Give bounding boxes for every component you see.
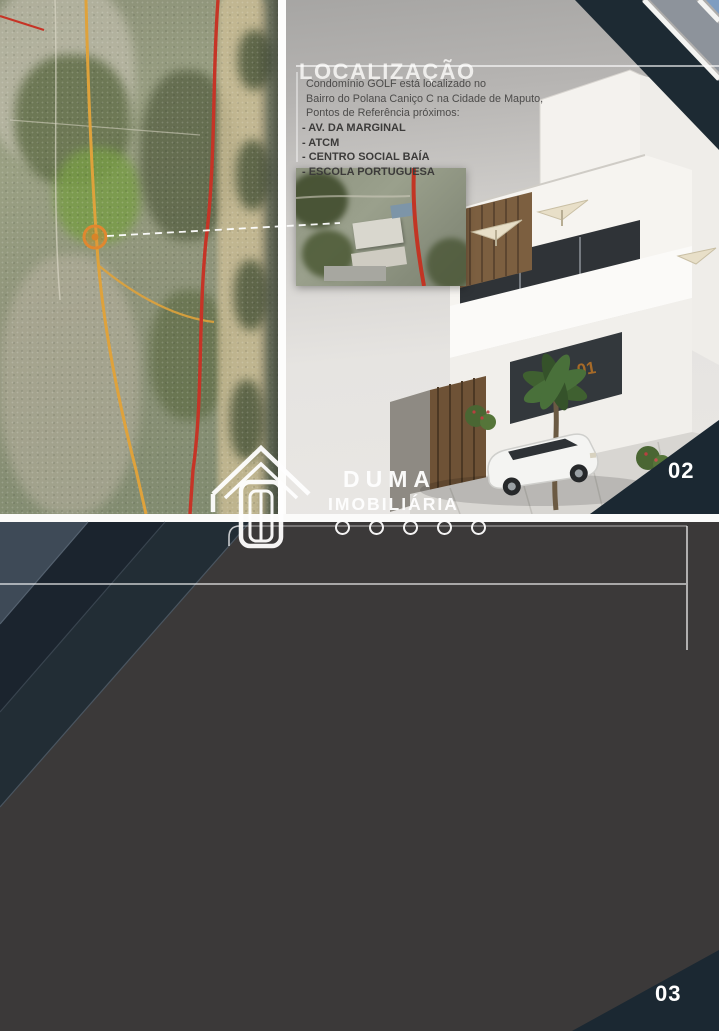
logo-circle: [335, 520, 350, 535]
localization-description: Condomínio GOLF está localizado no Bairr…: [306, 77, 543, 121]
road-light: [10, 120, 200, 135]
brochure-page: 01: [0, 0, 719, 1031]
brand-name-line2: IMOBILIÁRIA: [328, 494, 459, 515]
landmark-item: - CENTRO SOCIAL BAÍA: [302, 150, 435, 165]
brand-name-line1: DUMA: [343, 466, 436, 493]
road-red-spur: [0, 16, 44, 30]
floorplan-section: PLANTA R/C: [0, 522, 719, 1031]
landmark-list: - AV. DA MARGINAL - ATCM - CENTRO SOCIAL…: [302, 121, 435, 180]
logo-circle: [471, 520, 486, 535]
page-number-02: 02: [668, 458, 694, 484]
duma-house-icon: [205, 428, 325, 550]
map-marker-dot: [92, 234, 99, 241]
description-line: Condomínio GOLF está localizado no: [306, 77, 543, 92]
description-line: Bairro do Polana Caniço C na Cidade de M…: [306, 92, 543, 107]
inset-road: [296, 168, 466, 286]
logo-circle: [437, 520, 452, 535]
landmark-item: - ESCOLA PORTUGUESA: [302, 165, 435, 180]
logo-circles: [335, 520, 486, 535]
road-light: [55, 0, 60, 300]
duma-logo: DUMA IMOBILIÁRIA: [205, 428, 495, 550]
page-number-03: 03: [655, 981, 681, 1007]
inset-map: [296, 168, 466, 286]
road-orange: [86, 0, 146, 514]
landmark-item: - AV. DA MARGINAL: [302, 121, 435, 136]
description-line: Pontos de Referência próximos:: [306, 106, 543, 121]
landmark-item: - ATCM: [302, 136, 435, 151]
logo-circle: [403, 520, 418, 535]
road-orange-branch: [98, 265, 214, 322]
logo-circle: [369, 520, 384, 535]
